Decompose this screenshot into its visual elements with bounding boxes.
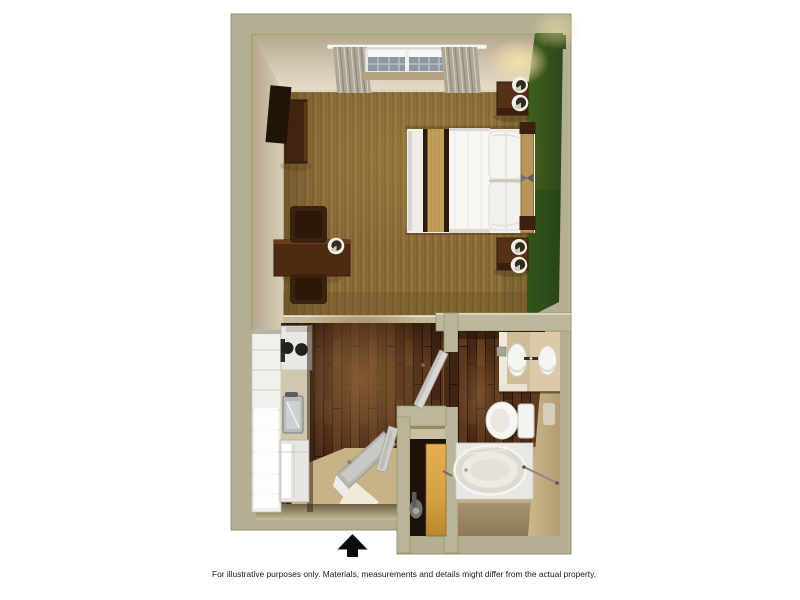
- svg-text:For illustrative purposes only: For illustrative purposes only. Material…: [212, 569, 596, 579]
